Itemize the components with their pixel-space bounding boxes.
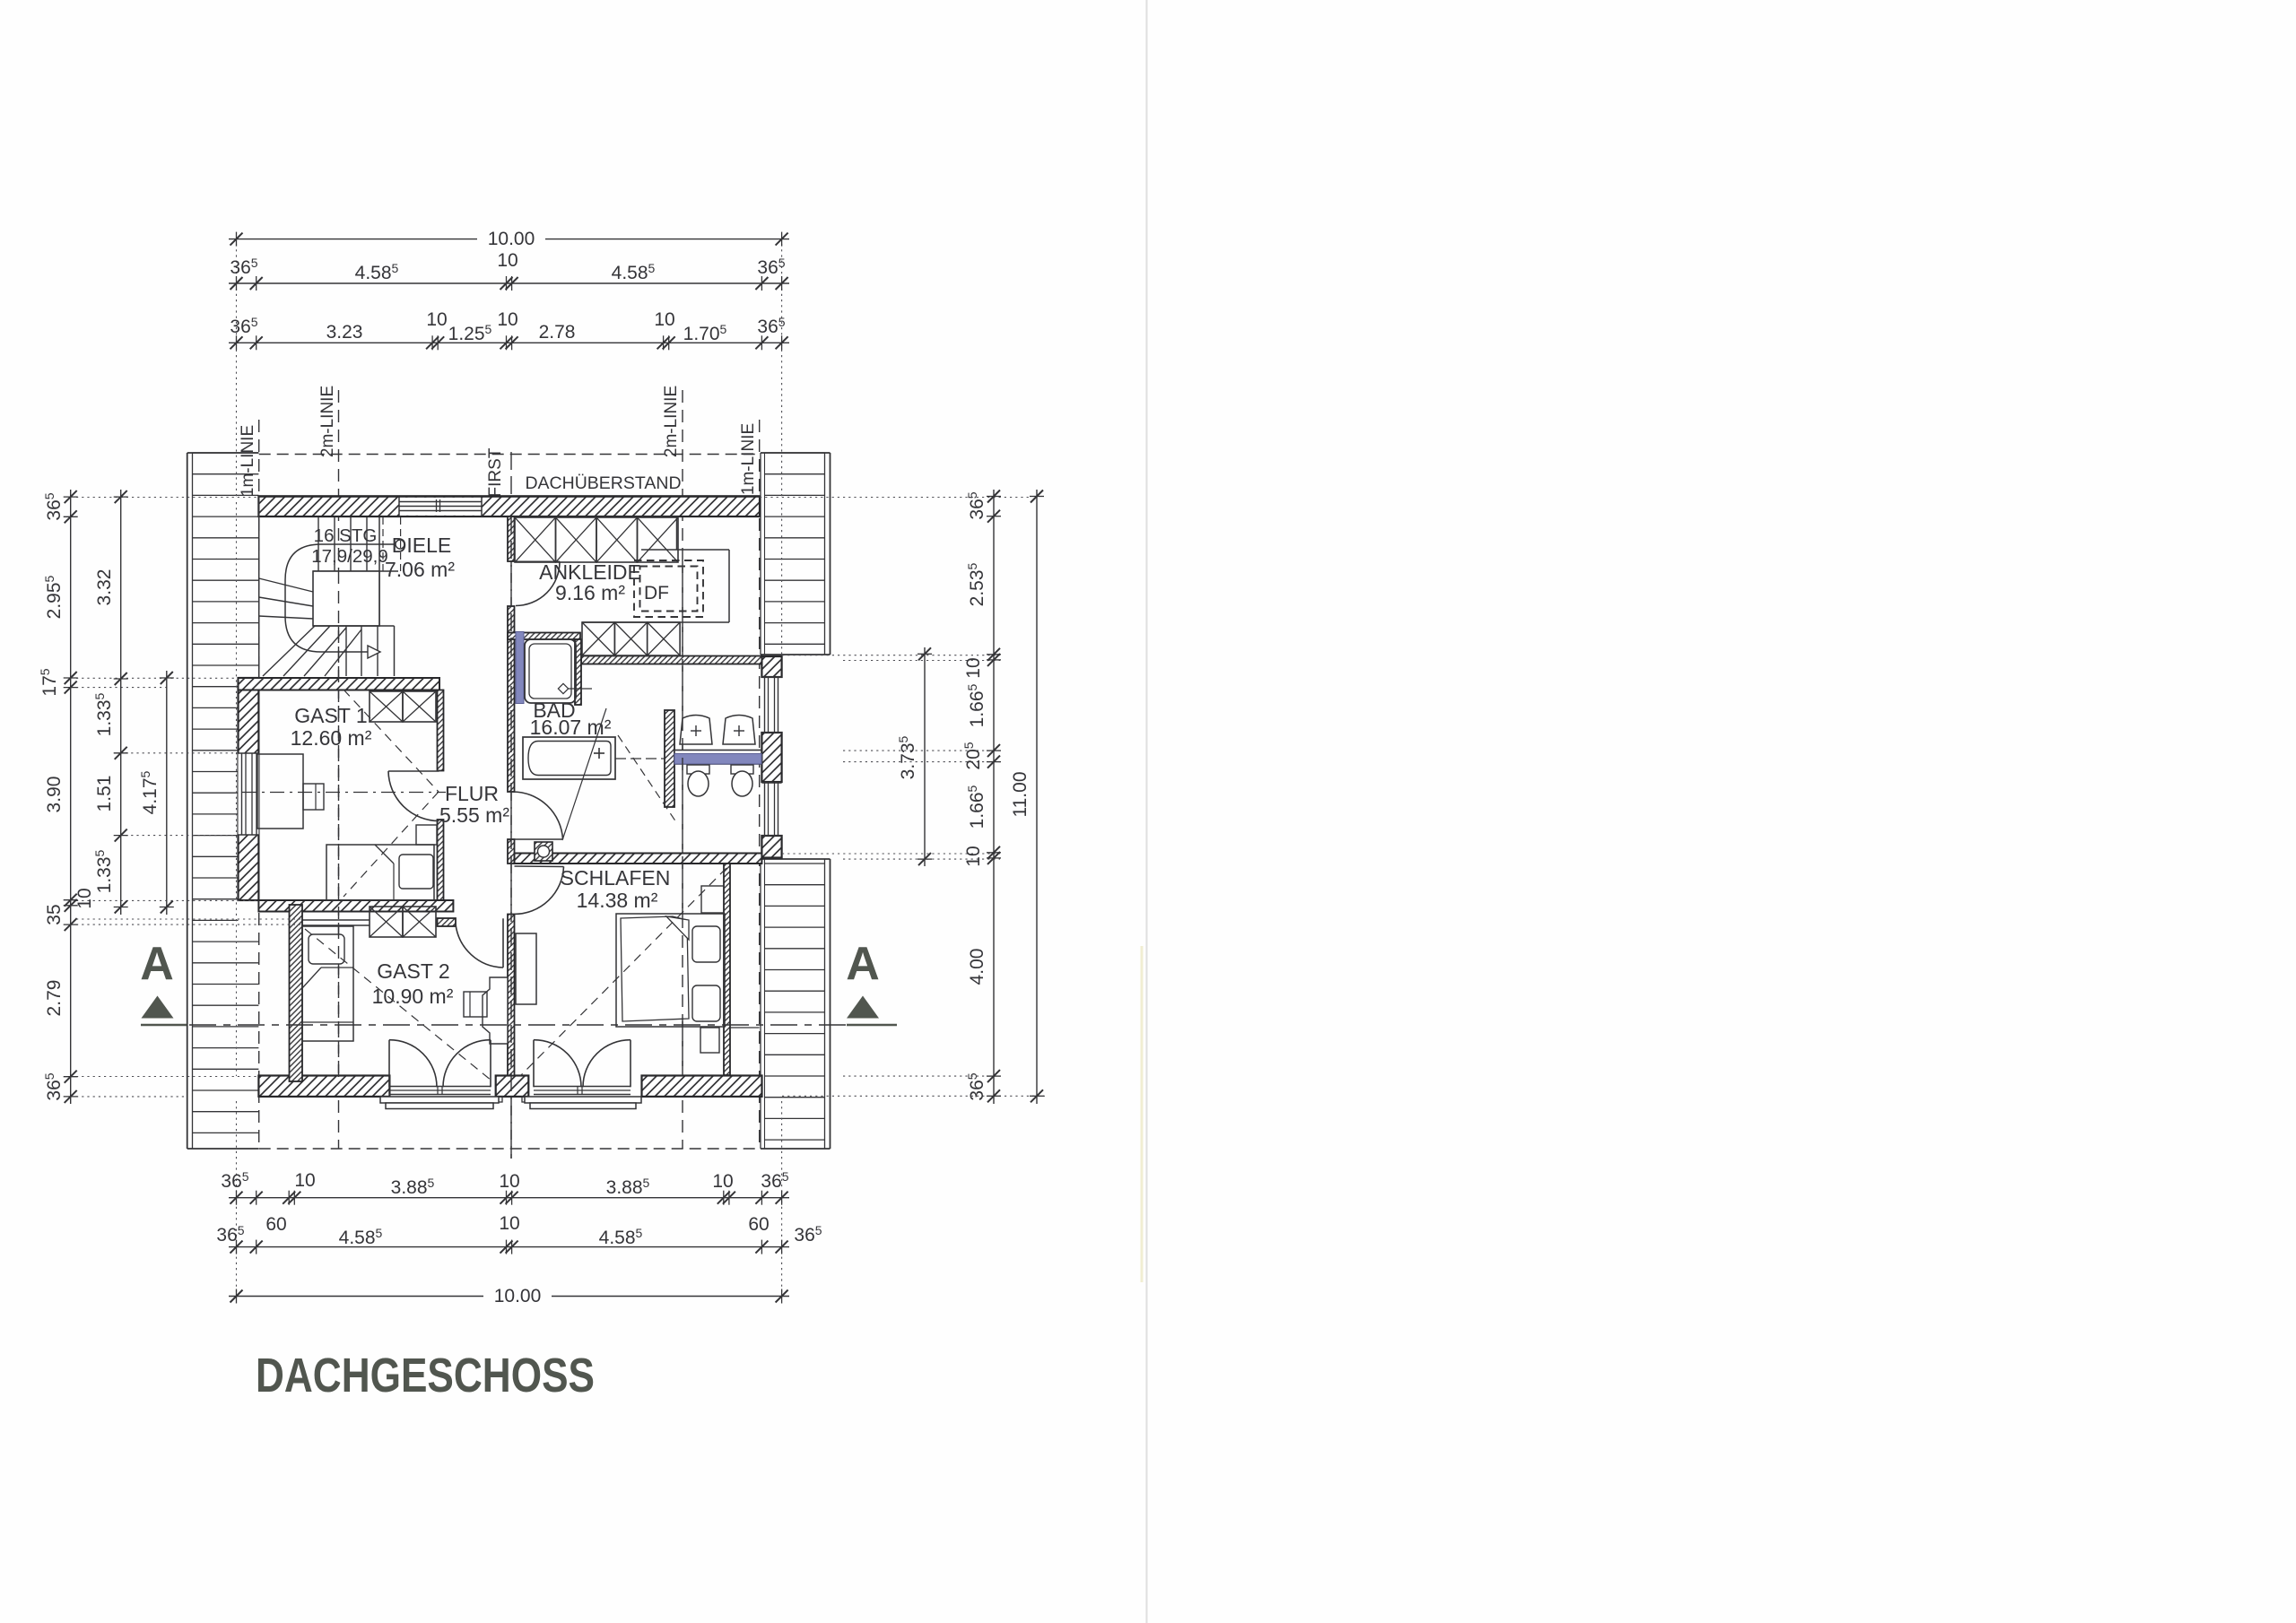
svg-text:3.32: 3.32 <box>94 569 115 606</box>
svg-text:FIRST: FIRST <box>486 447 505 497</box>
svg-text:7.06 m²: 7.06 m² <box>385 558 455 581</box>
svg-text:10: 10 <box>74 888 95 908</box>
svg-text:10.00: 10.00 <box>494 1286 542 1306</box>
svg-text:3.90: 3.90 <box>44 777 65 813</box>
svg-text:16.07 m²: 16.07 m² <box>530 716 612 739</box>
svg-text:1m-LINIE: 1m-LINIE <box>239 425 257 497</box>
svg-text:14.38 m²: 14.38 m² <box>577 889 658 912</box>
svg-text:9.16 m²: 9.16 m² <box>555 581 625 604</box>
svg-text:1.51: 1.51 <box>94 776 115 812</box>
svg-text:10: 10 <box>497 250 517 271</box>
svg-text:DACHÜBERSTAND: DACHÜBERSTAND <box>525 473 681 493</box>
svg-text:35: 35 <box>44 904 65 924</box>
svg-text:12.60 m²: 12.60 m² <box>291 726 372 750</box>
svg-text:10: 10 <box>426 309 447 330</box>
svg-text:1m-LINIE: 1m-LINIE <box>739 423 758 495</box>
svg-text:17,9/29,9: 17,9/29,9 <box>311 546 388 567</box>
svg-text:10: 10 <box>712 1171 733 1192</box>
svg-text:10: 10 <box>963 846 984 866</box>
svg-text:2m-LINIE: 2m-LINIE <box>318 386 337 457</box>
svg-text:2.78: 2.78 <box>539 322 576 343</box>
svg-text:3.23: 3.23 <box>326 322 363 343</box>
svg-text:10: 10 <box>499 1171 519 1192</box>
svg-text:DF: DF <box>644 583 669 603</box>
svg-text:60: 60 <box>748 1214 769 1235</box>
svg-text:11.00: 11.00 <box>1010 772 1031 818</box>
svg-text:10.90 m²: 10.90 m² <box>372 985 454 1008</box>
svg-text:10: 10 <box>963 657 984 678</box>
svg-text:A: A <box>140 938 174 990</box>
svg-text:A: A <box>846 938 880 990</box>
svg-text:FLUR: FLUR <box>445 782 499 805</box>
svg-text:16 STG: 16 STG <box>314 525 378 546</box>
svg-text:2m-LINIE: 2m-LINIE <box>662 386 681 457</box>
svg-text:60: 60 <box>265 1214 286 1235</box>
svg-text:SCHLAFEN: SCHLAFEN <box>561 866 671 890</box>
svg-text:2.79: 2.79 <box>44 980 65 1017</box>
svg-text:DACHGESCHOSS: DACHGESCHOSS <box>256 1349 595 1402</box>
svg-text:5.55 m²: 5.55 m² <box>439 803 509 827</box>
svg-text:10: 10 <box>497 309 517 330</box>
svg-text:10: 10 <box>654 309 674 330</box>
svg-text:10: 10 <box>294 1170 315 1191</box>
svg-text:GAST 1: GAST 1 <box>294 704 367 727</box>
svg-text:GAST 2: GAST 2 <box>377 959 449 983</box>
svg-text:10: 10 <box>499 1213 519 1234</box>
svg-text:DIELE: DIELE <box>392 534 451 557</box>
svg-text:10.00: 10.00 <box>488 229 535 249</box>
svg-text:4.00: 4.00 <box>967 949 987 985</box>
